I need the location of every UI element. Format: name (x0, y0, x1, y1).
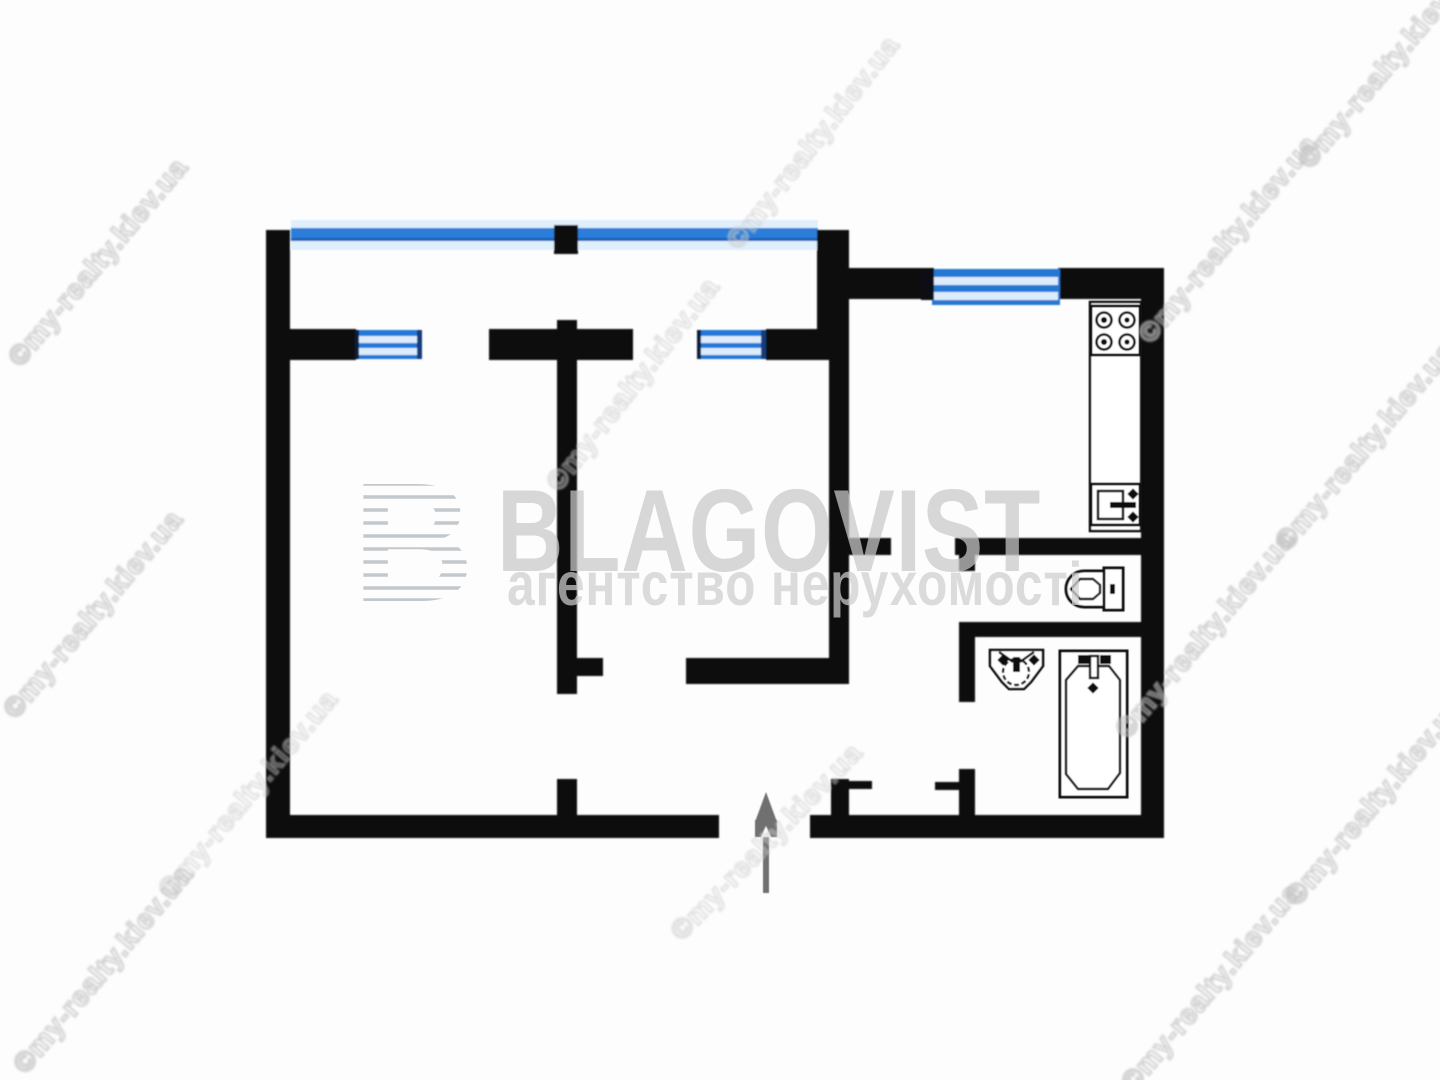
svg-text:агентство нерухомості: агентство нерухомості (507, 550, 1083, 618)
